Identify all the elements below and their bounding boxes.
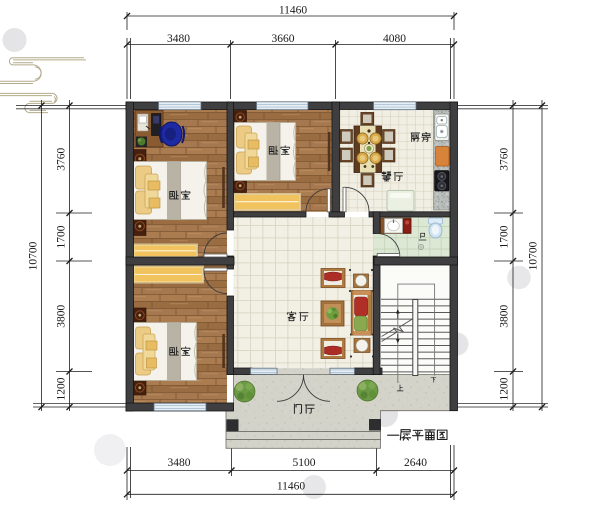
svg-text:11460: 11460 <box>277 481 306 493</box>
svg-text:3760: 3760 <box>56 147 68 170</box>
svg-text:3800: 3800 <box>499 304 511 327</box>
svg-text:3800: 3800 <box>56 304 68 327</box>
svg-text:3760: 3760 <box>499 147 511 170</box>
svg-text:1700: 1700 <box>499 225 511 248</box>
svg-text:5100: 5100 <box>293 457 316 469</box>
svg-text:4080: 4080 <box>383 33 406 45</box>
svg-text:2640: 2640 <box>404 457 427 469</box>
svg-text:10700: 10700 <box>528 241 540 270</box>
svg-text:1200: 1200 <box>499 377 511 400</box>
svg-text:11460: 11460 <box>279 5 308 17</box>
svg-text:1700: 1700 <box>56 225 68 248</box>
svg-text:3480: 3480 <box>167 33 190 45</box>
svg-text:3660: 3660 <box>272 33 295 45</box>
svg-text:10700: 10700 <box>28 241 40 270</box>
svg-text:3480: 3480 <box>168 457 191 469</box>
svg-text:1200: 1200 <box>56 377 68 400</box>
